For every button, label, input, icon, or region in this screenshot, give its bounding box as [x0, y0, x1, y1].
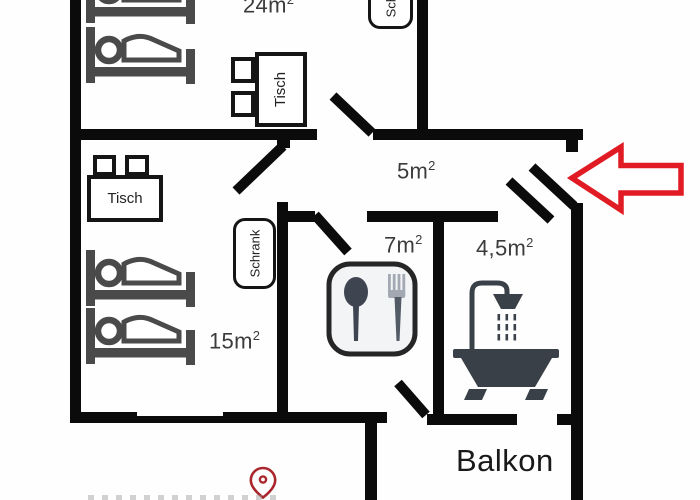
wall-room-divider [70, 129, 317, 140]
wardrobe-middle: Schrank [233, 218, 276, 289]
wall-balcony-left [365, 423, 377, 500]
chair-icon [231, 91, 255, 117]
wardrobe-label: Schrank [247, 230, 262, 278]
balcony-label: Balkon [456, 445, 554, 476]
area-label-hallway: 5m2 [397, 159, 435, 182]
table-label: Tisch [273, 72, 290, 107]
area-label-bedroom-small: 15m2 [209, 329, 260, 352]
area-label-kitchen: 7m2 [384, 233, 422, 256]
chair-icon [231, 57, 255, 83]
door-leaf-kitchen [315, 215, 348, 252]
shower-head [493, 294, 523, 309]
tub-rim [453, 349, 559, 358]
tub-foot [525, 389, 548, 400]
bunk-bed-icon [86, 250, 195, 307]
wall-bedroom-large-right [417, 0, 428, 140]
shower-pipe [472, 283, 507, 351]
shower-drops [498, 314, 517, 341]
bunk-bed-icon [86, 308, 195, 365]
location-pin-icon [251, 468, 275, 498]
chair-icon [93, 155, 116, 176]
wall-right [571, 203, 583, 500]
floor-plan: 24m2 5m2 7m2 4,5m2 15m2 Balkon Tisch Tis… [0, 0, 700, 500]
entrance-arrow-icon [572, 147, 681, 210]
wall-bottom-c [427, 414, 517, 425]
bathtub-shower-icon [453, 283, 559, 400]
entry-door-diagonal-inner [509, 181, 551, 220]
floor-plan-graphics [0, 0, 700, 500]
wall-bottom-b [223, 412, 387, 423]
door-leaf-bedroom-large [333, 96, 372, 133]
door-leaf-kitchen-balcony [398, 383, 426, 415]
spoon-handle [353, 305, 359, 341]
cutlery-icon [329, 264, 415, 354]
table-bedroom-large: Tisch [255, 52, 307, 127]
door-leaf-bedroom-small [236, 146, 283, 191]
spoon-bowl [344, 277, 368, 307]
tub-foot [464, 389, 487, 400]
area-label-bathroom: 4,5m2 [476, 236, 533, 259]
wall-kitchen-top-stub [287, 211, 315, 222]
tub-body [461, 358, 552, 387]
wardrobe-label: Schrank [383, 0, 398, 17]
wall-hallway-left [277, 202, 288, 423]
entry-door-diagonal-outer [532, 167, 574, 206]
table-label: Tisch [107, 190, 142, 207]
bunk-bed-icon [86, 27, 195, 84]
wall-kitchen-bath-top [367, 211, 498, 222]
cutlery-icon-frame [329, 264, 415, 354]
wall-entry-stub [566, 140, 578, 152]
wall-bottom-window [137, 416, 223, 423]
cutoff-caption-fragment [88, 495, 278, 500]
wall-top-right [373, 129, 583, 140]
wardrobe-top: Schrank [368, 0, 413, 29]
wall-bottom-d [557, 414, 583, 425]
chair-icon [125, 155, 149, 176]
wall-kitchen-bath-divider [433, 211, 444, 423]
table-bedroom-small: Tisch [87, 175, 163, 222]
wall-left [70, 0, 81, 423]
wall-bottom-a [70, 412, 137, 423]
bunk-bed-icon [86, 0, 195, 24]
area-label-bedroom-large: 24m2 [243, 0, 294, 16]
